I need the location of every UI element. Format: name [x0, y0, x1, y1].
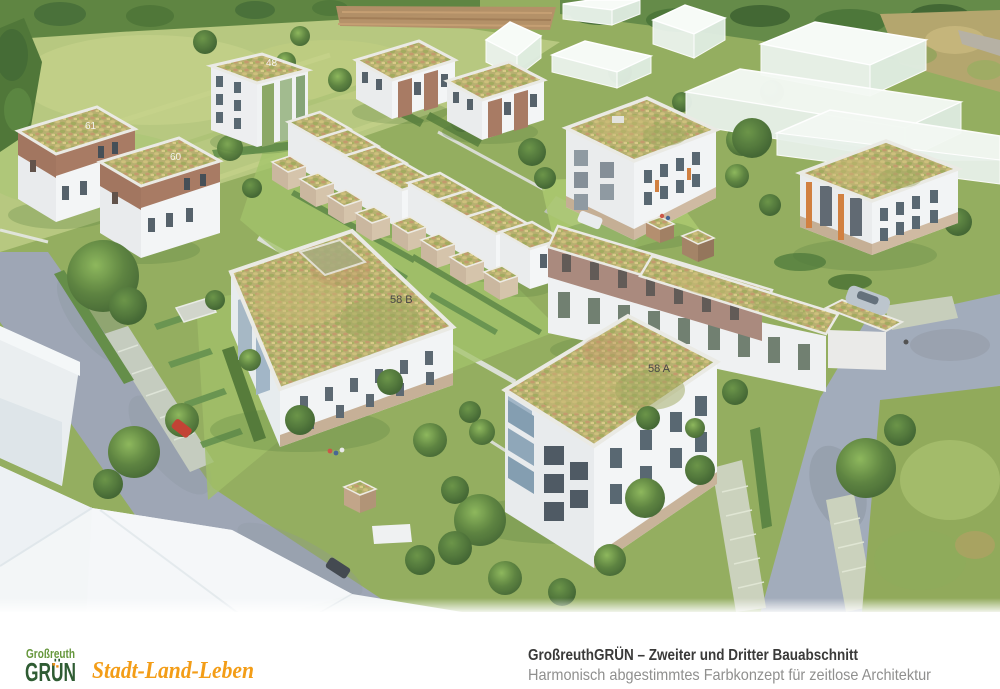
svg-text:Harmonisch abgestimmtes Farbko: Harmonisch abgestimmtes Farbkonzept für …: [528, 667, 932, 684]
svg-text:Stadt-Land-Leben: Stadt-Land-Leben: [92, 658, 254, 684]
svg-text:GroßreuthGRÜN – Zweiter und Dr: GroßreuthGRÜN – Zweiter und Dritter Baua…: [528, 645, 859, 664]
svg-text:GRÜN: GRÜN: [25, 658, 76, 687]
